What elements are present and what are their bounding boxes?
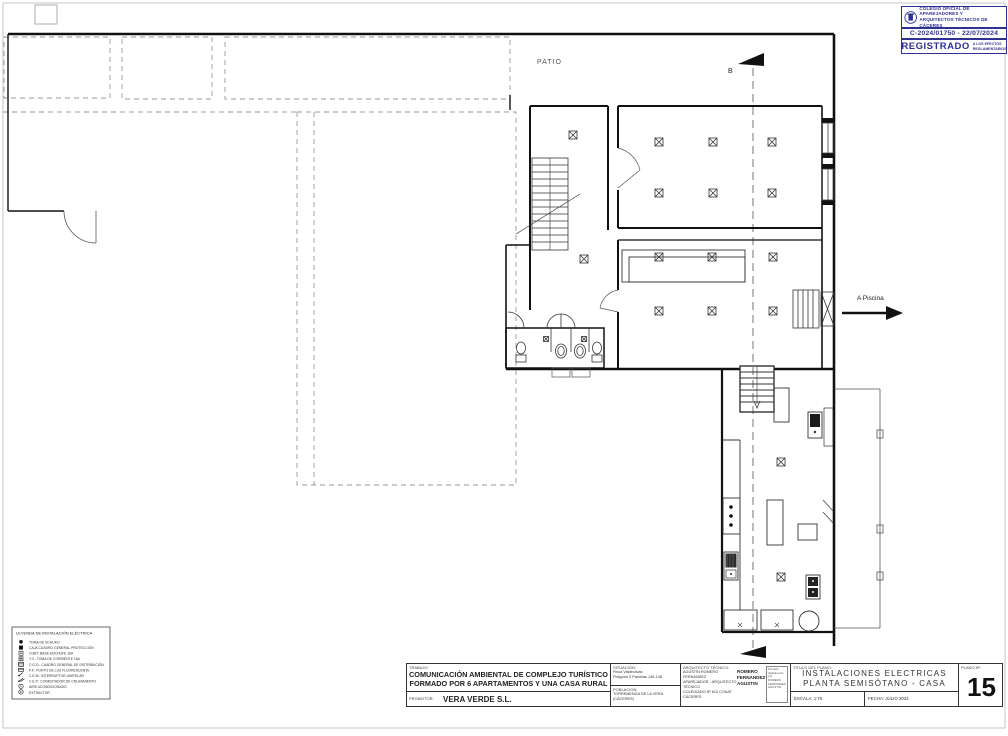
section-marker-top-icon [738,53,764,66]
promotor-label: PROMOTOR: [409,696,434,701]
legend-item-label: AIRE ACONDICIONADO [29,685,67,689]
trabajo-line1: COMUNICACIÓN AMBIENTAL DE COMPLEJO TURÍS… [407,670,610,679]
corner-box [35,5,57,24]
plano-label: PLANO Nº: [961,665,981,670]
sink-icon [556,344,586,358]
plano-cell: PLANO Nº: 15 [959,664,1004,706]
svg-text:A: A [20,685,22,689]
patio-label: PATIO [537,59,562,66]
bathrooms [506,312,604,377]
room-door [618,148,640,188]
kitchen-fixtures [722,388,834,631]
legend-item-label: C.E.M.: INTERRUPTOR UNIPOLAR [29,674,84,678]
stamp-org-line1: COLEGIO OFICIAL DE APAREJADORES Y [919,6,1004,17]
trabajo-line2: FORMADO POR 6 APARTAMENTOS Y UNA CASA RU… [407,679,610,688]
a-piscina-arrow-icon [842,306,903,320]
drawing-sheet: B B [0,0,1008,736]
promotor-cell: PROMOTOR: VERA VERDE S.L. [407,692,611,706]
ceiling-light-icons [544,131,786,581]
titulo-line2: PLANTA SEMISÓTANO - CASA RURAL [791,679,958,692]
fecha-value: FECHA: JULIO 2024 [868,696,909,701]
legend-item-label: P.F.: PUNTO DE LUZ FLUORESCENTE [29,668,90,672]
main-staircase [516,158,580,250]
pool-exit-stairs [793,290,834,328]
corridor-stairs [740,366,774,412]
burner-icon [729,505,733,509]
legend-item-label: TOMA DE SCHUKO [29,640,60,644]
arquitecto-cell: ARQUITECTO TÉCNICO: AGUSTÍN ROMERO FERNÁ… [681,664,791,706]
legend-box: LEYENDA DE INSTALACIÓN ELÉCTRICA TOMA DE… [12,627,110,699]
promotor-value: VERA VERDE S.L. [443,695,512,704]
registrado-note2: REGLAMENTARIOS [973,47,1007,51]
escala-value: ESCALA: 1:75 [794,696,822,701]
arquitecto-line3: COLEGIADO Nº 612 COAAT CÁCERES [683,690,739,700]
legend-item-label: C.E.P.: CONMUTADOR DE CRUZAMIENTO [29,680,96,684]
situacion-line2: Polígono 3 Parcelas 146-148 [613,675,662,680]
title-block: TRABAJO: COMUNICACIÓN AMBIENTAL DE COMPL… [406,663,1003,707]
situacion-cell: SITUACIÓN: Finca Valdeolivas Polígono 3 … [611,664,681,686]
patio-door [64,211,96,243]
poblacion-cell: POBLACIÓN: TORREMENGA DE LA VERA (CÁCERE… [611,686,681,706]
plano-number: 15 [959,672,1004,703]
escala-cell: ESCALA: 1:75 [791,692,865,706]
legend-item-label: CGBT: BASE ENCHUFE 16A [29,652,74,656]
signature-name: ROMERO FERNANDEZ AGUSTIN [737,669,765,687]
coaat-logo-icon [904,10,917,25]
legend-symbol-filled-square [19,646,23,650]
digital-signature-box: Firmado digitalmente por ROMERO FERNANDE… [766,666,788,703]
fridge-icon [808,412,822,438]
stamp-org-line2: ARQUITECTOS TÉCNICOS DE CÁCERES [919,17,1004,28]
legend-item-label: EXTRACTOR [29,691,50,695]
right-wall-windows [822,118,834,205]
dashed-projection-lines [3,37,516,485]
arquitecto-line1: AGUSTÍN ROMERO FERNÁNDEZ [683,670,739,680]
floor-plan-svg: B B [0,0,1008,736]
titulo-cell: TITULO DEL PLANO: INSTALACIONES ELECTRIC… [791,664,959,692]
registrado-note1: A LOS EFECTOS [973,42,1007,46]
legend-title: LEYENDA DE INSTALACIÓN ELÉCTRICA [16,631,93,636]
legend-item-label: C.G.D.: CUADRO GENERAL DE DISTRIBUCIÓN [29,662,104,667]
legend-item-label: CAJA CUADRO GENERAL PROTECCIÓN [29,645,94,650]
section-label-top: B [728,68,733,75]
stamp-org-box: COLEGIO OFICIAL DE APAREJADORES Y ARQUIT… [901,6,1007,28]
stacked-oven-icon [806,575,820,599]
stamp-registered-box: REGISTRADO A LOS EFECTOS REGLAMENTARIOS [901,39,1007,54]
oven-icon [724,552,738,580]
poblacion-value: TORREMENGA DE LA VERA (CÁCERES) [613,692,680,702]
titulo-label: TITULO DEL PLANO: [793,665,832,670]
trabajo-cell: TRABAJO: COMUNICACIÓN AMBIENTAL DE COMPL… [407,664,611,692]
svg-text:E: E [20,690,22,694]
registration-stamp: COLEGIO OFICIAL DE APAREJADORES Y ARQUIT… [901,6,1007,54]
a-piscina-label: A Piscina [857,295,884,302]
burner-icon [729,514,733,518]
interior-walls [506,106,834,632]
burner-icon [729,523,733,527]
bar-counter [622,250,745,282]
titulo-line1: INSTALACIONES ELECTRICAS [791,669,958,679]
arquitecto-line2: APAREJADOR - ARQUITECTO TÉCNICO [683,680,739,690]
fecha-cell: FECHA: JULIO 2024 [865,692,959,706]
trabajo-label: TRABAJO: [409,665,429,670]
terrace-boundary [834,389,883,628]
hall-door [600,290,618,312]
registrado-label: REGISTRADO [901,41,969,52]
legend-symbol-filled-circle [19,640,23,644]
stamp-registry-number: C-2024/01750 - 22/07/2024 [901,28,1007,39]
legend-item-label: T.C.: TOMA DE CORRIENTE 16A [29,657,81,661]
outer-walls [8,34,834,646]
